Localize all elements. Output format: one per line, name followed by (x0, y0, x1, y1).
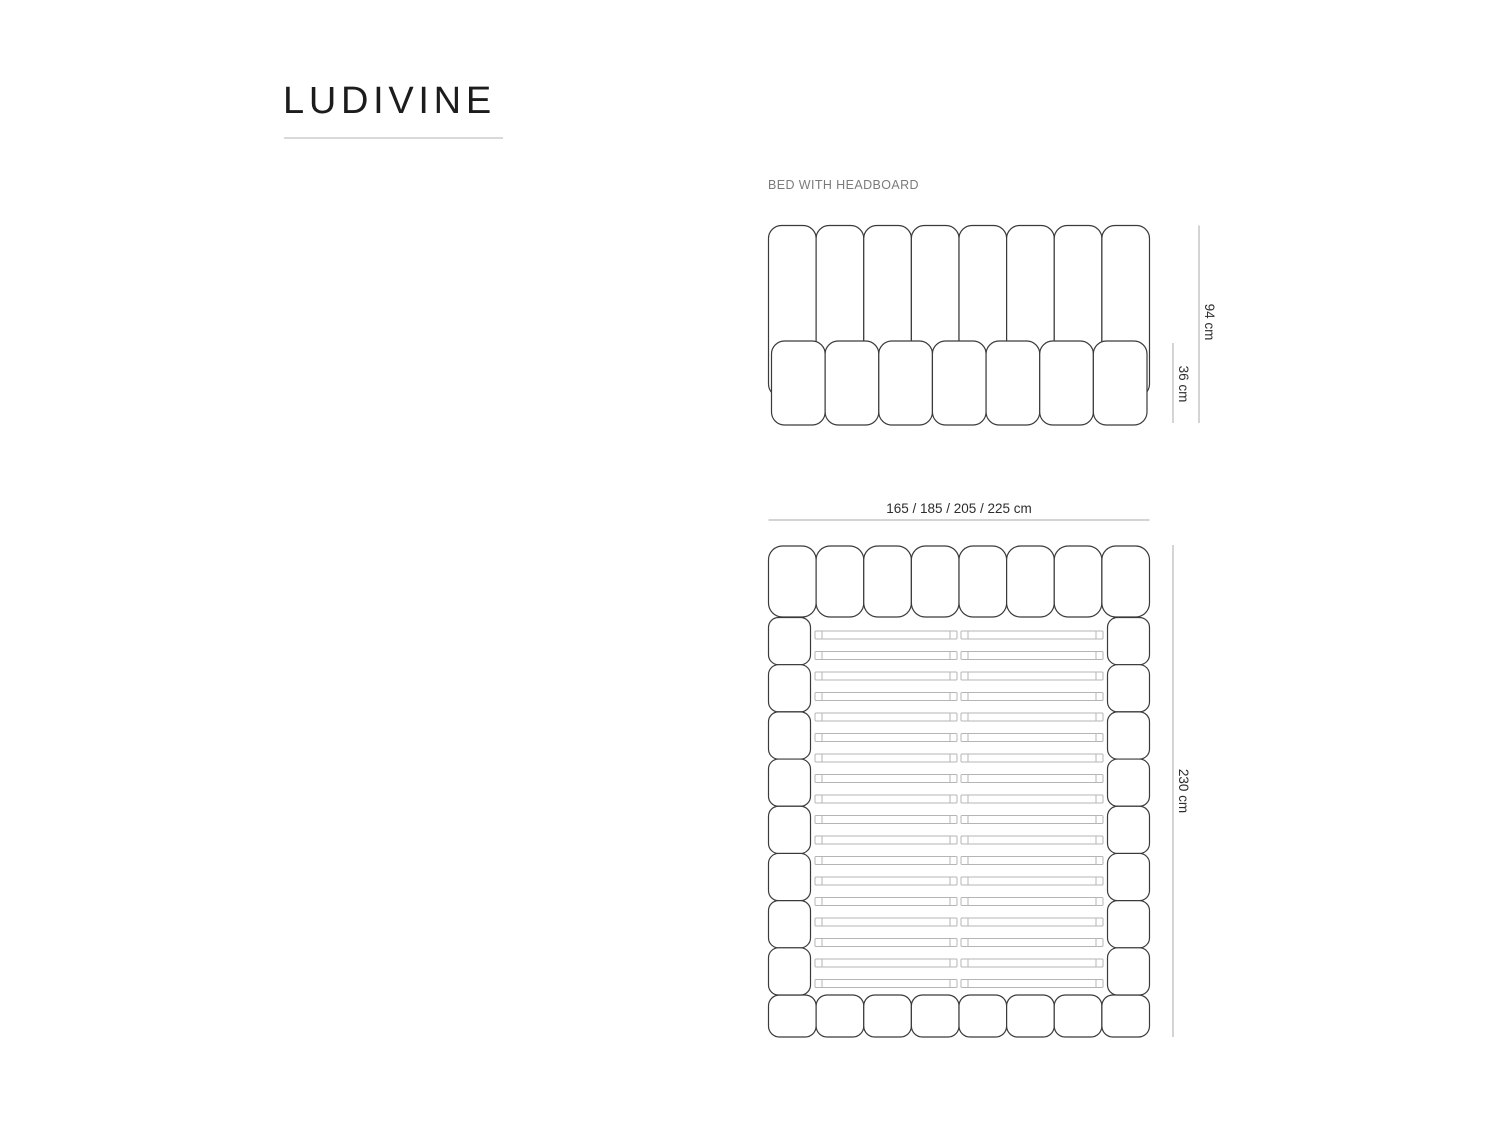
left-rail-segment (769, 618, 811, 665)
front-view-label: BED WITH HEADBOARD (768, 178, 919, 192)
base-cushion (879, 341, 933, 425)
base-cushion (1040, 341, 1094, 425)
bed-slat-left (815, 939, 957, 947)
bed-slat-left (815, 754, 957, 762)
headboard-panel-top (959, 546, 1007, 617)
footboard-panel (1007, 995, 1055, 1037)
base-cushion (1093, 341, 1147, 425)
footboard-panel (769, 995, 817, 1037)
right-rail-segment (1108, 759, 1150, 806)
bed-slat-right (961, 693, 1103, 701)
bed-slat-right (961, 918, 1103, 926)
base-height-label: 36 cm (1176, 366, 1191, 403)
bed-slat-left (815, 836, 957, 844)
bed-slat-right (961, 713, 1103, 721)
bed-slat-left (815, 631, 957, 639)
bed-slat-right (961, 836, 1103, 844)
right-rail-segment (1108, 618, 1150, 665)
bed-slat-right (961, 631, 1103, 639)
footboard-panel (816, 995, 864, 1037)
bed-slat-right (961, 959, 1103, 967)
bed-slat-left (815, 980, 957, 988)
right-rail-segment (1108, 853, 1150, 900)
right-rail-segment (1108, 806, 1150, 853)
bed-slat-right (961, 754, 1103, 762)
headboard-panel-top (1054, 546, 1102, 617)
bed-slat-left (815, 693, 957, 701)
right-rail-segment (1108, 712, 1150, 759)
slat-grid (815, 631, 1103, 988)
bed-slat-right (961, 816, 1103, 824)
footboard-panel (864, 995, 912, 1037)
headboard-panel-top (1007, 546, 1055, 617)
footboard-panel (911, 995, 959, 1037)
bed-slat-right (961, 795, 1103, 803)
footboard-panel (1054, 995, 1102, 1037)
right-rail-segment (1108, 901, 1150, 948)
headboard-panel-top (911, 546, 959, 617)
bed-slat-right (961, 652, 1103, 660)
bed-slat-left (815, 795, 957, 803)
front-base (772, 341, 1148, 425)
bed-slat-left (815, 857, 957, 865)
bed-slat-left (815, 816, 957, 824)
bed-slat-right (961, 939, 1103, 947)
width-options-label: 165 / 185 / 205 / 225 cm (886, 501, 1032, 516)
footboard-panel (1102, 995, 1150, 1037)
left-rail-segment (769, 948, 811, 995)
right-rail-segment (1108, 948, 1150, 995)
bed-slat-right (961, 980, 1103, 988)
bed-slat-right (961, 672, 1103, 680)
left-rail-segment (769, 665, 811, 712)
spec-sheet-page: { "page_title": "LUDIVINE", "front_view"… (0, 0, 1500, 1125)
bed-slat-right (961, 734, 1103, 742)
headboard-panel-top (816, 546, 864, 617)
bed-slat-left (815, 713, 957, 721)
bed-slat-right (961, 775, 1103, 783)
left-rail-segment (769, 901, 811, 948)
headboard-panel-top (1102, 546, 1150, 617)
right-rail-segment (1108, 665, 1150, 712)
bed-slat-left (815, 959, 957, 967)
bed-slat-left (815, 918, 957, 926)
base-cushion (932, 341, 986, 425)
bed-slat-left (815, 652, 957, 660)
bed-slat-left (815, 775, 957, 783)
left-rail-segment (769, 759, 811, 806)
headboard-panel-top (769, 546, 817, 617)
left-rail-segment (769, 853, 811, 900)
total-height-label: 94 cm (1202, 304, 1217, 341)
footboard-panel (959, 995, 1007, 1037)
page-title: LUDIVINE (283, 82, 496, 120)
top-view-drawing: 165 / 185 / 205 / 225 cm 230 cm (750, 490, 1230, 1050)
bed-slat-left (815, 734, 957, 742)
bed-slat-right (961, 898, 1103, 906)
bed-slat-left (815, 672, 957, 680)
left-rail-segment (769, 806, 811, 853)
front-view-drawing: 94 cm 36 cm (750, 208, 1230, 443)
bed-slat-right (961, 877, 1103, 885)
base-cushion (825, 341, 879, 425)
length-label: 230 cm (1176, 769, 1191, 813)
bed-slat-left (815, 877, 957, 885)
left-rail-segment (769, 712, 811, 759)
bed-slat-left (815, 898, 957, 906)
bed-slat-right (961, 857, 1103, 865)
base-cushion (772, 341, 826, 425)
title-underline (284, 137, 503, 139)
headboard-panel-top (864, 546, 912, 617)
base-cushion (986, 341, 1040, 425)
